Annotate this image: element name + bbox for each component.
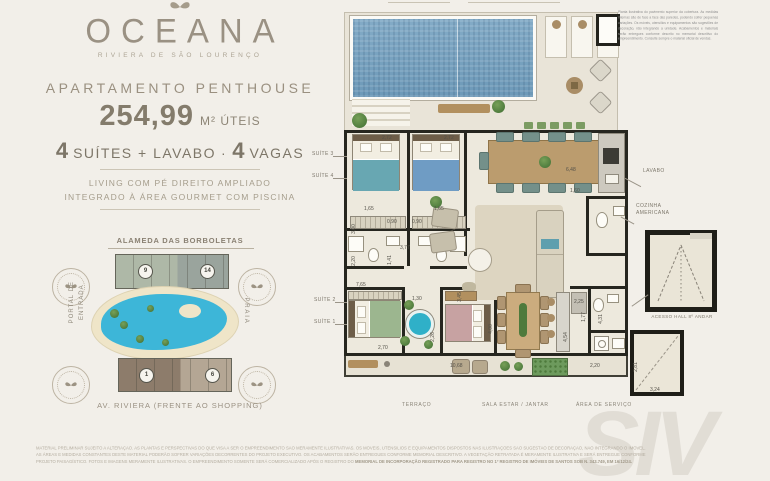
hedge xyxy=(563,122,572,129)
butterfly-icon xyxy=(250,283,264,291)
stairs-hall xyxy=(645,230,717,312)
suite1-label: SUÍTE 1 xyxy=(314,319,336,325)
dim-servico-width: 2,20 xyxy=(590,363,600,369)
dim-stub xyxy=(388,2,450,3)
void-diagonal xyxy=(634,334,680,392)
suite2-label: SUÍTE 2 xyxy=(314,297,336,303)
table-centerpiece xyxy=(539,156,551,168)
butterfly-icon xyxy=(64,381,78,389)
gourmet-dining-table xyxy=(488,140,602,184)
sitemap-badge-bottomright xyxy=(238,366,276,404)
wardrobe-suite3 xyxy=(350,216,406,229)
dim-bath3-width: 1,65 xyxy=(364,206,374,212)
toilet-lavabo xyxy=(596,212,608,228)
dim-wc-height: 1,77 xyxy=(581,312,587,322)
sitemap-top-label: ALAMEDA DAS BORBOLETAS xyxy=(40,236,320,245)
wall xyxy=(430,266,467,269)
sitemap-left-label: PORTAL DE ENTRADA xyxy=(67,269,87,335)
alameda-underline xyxy=(108,248,254,249)
deck-bench xyxy=(438,104,490,113)
terraco-label: TERRAÇO xyxy=(402,402,431,408)
shower-bath3 xyxy=(348,236,364,252)
sala-chair-end xyxy=(515,284,531,293)
dining-chair xyxy=(496,183,514,193)
sofa xyxy=(536,210,564,298)
hedge xyxy=(550,122,559,129)
area-value: 254,99 xyxy=(99,100,194,133)
dim-suite2-length: 7,65 xyxy=(356,282,366,288)
toilet-bath3 xyxy=(368,248,379,262)
sala-chair xyxy=(497,296,506,310)
sala-label: SALA ESTAR / JANTAR xyxy=(482,402,549,408)
stool xyxy=(547,298,555,306)
disclaimer-registration: MEMORIAL DE INCORPORAÇÃO REGISTRADO PARA… xyxy=(355,460,632,464)
blanket xyxy=(446,305,473,341)
leader-line xyxy=(335,302,347,303)
sitemap-building-bottom: 1 6 xyxy=(118,358,232,392)
deck-corner-structure xyxy=(596,14,620,46)
wall xyxy=(440,289,443,356)
highlight-text: LIVING COM PÉ DIREITO AMPLIADO INTEGRADO… xyxy=(40,177,320,204)
wall xyxy=(344,266,404,269)
blanket xyxy=(369,301,401,337)
pillow xyxy=(473,326,482,338)
terrace-lamp xyxy=(384,361,390,367)
sitemap-right-label: PRAIA xyxy=(243,291,249,331)
armchair xyxy=(429,230,458,253)
wall xyxy=(586,196,589,256)
sitemap-building-top: 9 14 xyxy=(115,254,229,289)
leader-line xyxy=(333,156,347,157)
dining-chair xyxy=(496,132,514,142)
separator-dot: · xyxy=(221,145,227,161)
kitchen-sink xyxy=(605,174,619,184)
wall xyxy=(588,289,591,356)
kitchen-counter xyxy=(598,133,625,193)
sitemap-bottom-label: AV. RIVIERA (FRENTE AO SHOPPING) xyxy=(40,401,320,410)
bed-suite4 xyxy=(412,134,460,190)
stairs-icon xyxy=(650,235,712,307)
sink-servico xyxy=(607,294,619,303)
acesso-hall-label: ACESSO HALL 8º ANDAR xyxy=(644,314,720,319)
kitchen-island xyxy=(556,292,570,352)
dim-lavabo-width: 1,60 xyxy=(570,188,580,194)
hedge xyxy=(576,122,585,129)
stove xyxy=(603,148,619,164)
sala-chair-end xyxy=(515,349,531,358)
dim-terraco-width: 10,68 xyxy=(450,363,463,369)
table-center xyxy=(571,82,578,89)
cozinha-label-1: COZINHA xyxy=(636,203,661,209)
building-bottom-right-number: 6 xyxy=(205,368,220,383)
legal-disclaimer: MATERIAL PRELIMINAR SUJEITO A ALTERAÇÃO.… xyxy=(36,446,646,476)
dim-hall-height: 2,81 xyxy=(633,362,639,372)
leader-line xyxy=(333,178,347,179)
area-unit: M² ÚTEIS xyxy=(200,114,261,128)
suite4-label: SUÍTE 4 xyxy=(312,173,334,179)
dim-suite2-width: 2,70 xyxy=(378,345,388,351)
vertical-garden xyxy=(532,358,568,376)
terrace-plant xyxy=(400,336,410,346)
dim-hall3-width: 0,90 xyxy=(387,219,397,225)
lagoon-island xyxy=(179,304,201,318)
stool xyxy=(547,330,555,338)
wall xyxy=(344,287,405,290)
wall xyxy=(588,330,628,333)
toilet-servico xyxy=(593,298,604,312)
washer xyxy=(594,336,609,351)
deck-tree xyxy=(352,113,367,128)
corner-note: Planta ilustrativa do pavimento superior… xyxy=(618,10,718,100)
wall xyxy=(586,196,628,199)
stairs-landing xyxy=(690,233,712,239)
washer-door xyxy=(598,340,606,348)
bed-suite1 xyxy=(445,304,491,342)
divider-bottom xyxy=(100,209,260,210)
dim-closet-width: 1,30 xyxy=(412,296,422,302)
area-row: 254,99 M² ÚTEIS xyxy=(40,100,320,133)
dim-suite1-height: 3,45 xyxy=(457,292,463,302)
pillow xyxy=(473,310,482,322)
dining-table-sala xyxy=(506,292,540,350)
lagoon-tree xyxy=(147,305,154,312)
pillow xyxy=(357,306,366,318)
wall xyxy=(407,130,410,230)
dining-chair xyxy=(522,183,540,193)
divider-top xyxy=(100,169,260,170)
dim-corridor-height: 1,41 xyxy=(387,255,393,265)
sala-chair xyxy=(497,313,506,327)
bed-suite3 xyxy=(352,134,400,190)
wall xyxy=(586,253,628,256)
sitemap-lagoon xyxy=(92,287,238,359)
wardrobe-suite2 xyxy=(348,291,402,300)
highlight-line1: LIVING COM PÉ DIREITO AMPLIADO xyxy=(40,177,320,191)
dim-bath1-height: 2,26 xyxy=(430,332,436,342)
deck-round-table xyxy=(566,77,583,94)
dim-gourmet-width: 6,48 xyxy=(566,167,576,173)
sink-bath3 xyxy=(386,236,400,246)
dim-suite3-depth: 3,00 xyxy=(351,224,357,234)
headboard xyxy=(349,301,355,337)
sala-chair xyxy=(497,330,506,344)
sitemap-badge-bottomleft xyxy=(52,366,90,404)
dim-left-height: 2,20 xyxy=(351,256,357,266)
wall xyxy=(570,286,628,289)
vagas-count: 4 xyxy=(232,138,244,164)
building-top-left-number: 9 xyxy=(138,264,153,279)
coffee-table xyxy=(468,248,492,272)
sofa-throw xyxy=(541,239,559,249)
dining-chair xyxy=(548,132,566,142)
brand-tagline: RIVIERA DE SÃO LOURENÇO xyxy=(40,52,320,59)
table-runner xyxy=(519,303,527,337)
dining-chair xyxy=(548,183,566,193)
building-bottom-left-number: 1 xyxy=(139,368,154,383)
hedge xyxy=(537,122,546,129)
building-top-right-number: 14 xyxy=(200,264,215,279)
blanket xyxy=(413,159,459,191)
dining-chair xyxy=(522,132,540,142)
lagoon-tree xyxy=(110,309,119,318)
hedge xyxy=(524,122,533,129)
dim-cozinha-width: 2,25 xyxy=(574,299,584,305)
terrace-pot xyxy=(500,361,510,371)
sofa-seam xyxy=(537,254,563,255)
pillow xyxy=(357,322,366,334)
lagoon-tree xyxy=(162,339,169,346)
suites-label: SUÍTES + LAVABO xyxy=(73,145,216,161)
butterfly-icon xyxy=(250,381,264,389)
lavabo-label: LAVABO xyxy=(643,168,665,174)
dim-suite3-width: 2,72 xyxy=(382,135,392,141)
listing-category: APARTAMENTO PENTHOUSE xyxy=(40,80,320,96)
dim-bath4-width: 1,65 xyxy=(434,206,444,212)
laundry-tank xyxy=(612,338,625,349)
sun-lounger xyxy=(571,16,593,58)
vagas-label: VAGAS xyxy=(249,145,304,161)
terrace-bench xyxy=(348,360,378,368)
dim-cozinha-height: 4,31 xyxy=(598,314,604,324)
leader-line xyxy=(335,324,347,325)
wicker-chair xyxy=(472,360,488,374)
dining-chair xyxy=(574,132,592,142)
sink-lavabo xyxy=(613,206,625,216)
suite3-label: SUÍTE 3 xyxy=(312,151,334,157)
dim-island-height: 4,54 xyxy=(563,332,569,342)
sun-lounger xyxy=(545,16,567,58)
stool xyxy=(547,314,555,322)
dim-corridor-width: 3,77 xyxy=(400,245,410,251)
flyer-canvas: OCEANA RIVIERA DE SÃO LOURENÇO APARTAMEN… xyxy=(0,0,770,481)
dining-chair-end xyxy=(479,152,489,170)
lagoon-tree xyxy=(136,335,144,343)
lagoon-tree xyxy=(120,321,128,329)
pool-lane-line xyxy=(457,19,458,97)
features-row: 4 SUÍTES + LAVABO · 4 VAGAS xyxy=(40,138,320,164)
pool xyxy=(350,16,536,100)
deck-plant xyxy=(492,100,505,113)
dim-suite4-width: 2,72 xyxy=(444,135,454,141)
brand-logo: OCEANA xyxy=(40,11,320,51)
cozinha-label-2: AMERICANA xyxy=(636,210,669,216)
blanket xyxy=(353,159,399,191)
suites-count: 4 xyxy=(56,138,68,164)
dim-stub xyxy=(468,2,560,3)
terrace-pot xyxy=(514,362,523,371)
bed-suite2 xyxy=(348,300,400,338)
highlight-line2: INTEGRADO À ÁREA GOURMET COM PISCINA xyxy=(40,191,320,205)
dim-hall4-width: 0,90 xyxy=(412,219,422,225)
dim-sala-height: 4,00 xyxy=(488,324,494,334)
